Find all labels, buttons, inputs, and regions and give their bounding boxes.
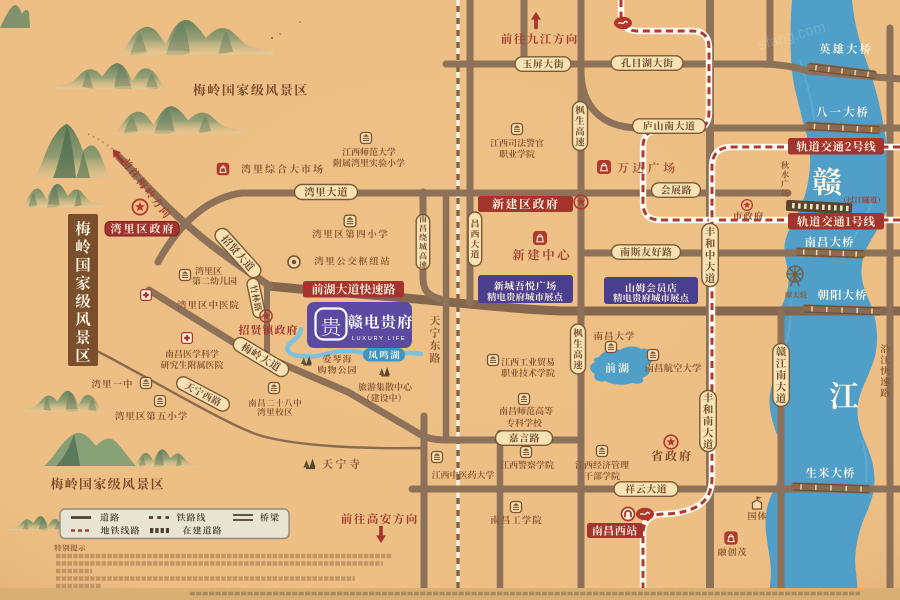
svg-text:LUXURY LIFE: LUXURY LIFE	[352, 336, 407, 342]
